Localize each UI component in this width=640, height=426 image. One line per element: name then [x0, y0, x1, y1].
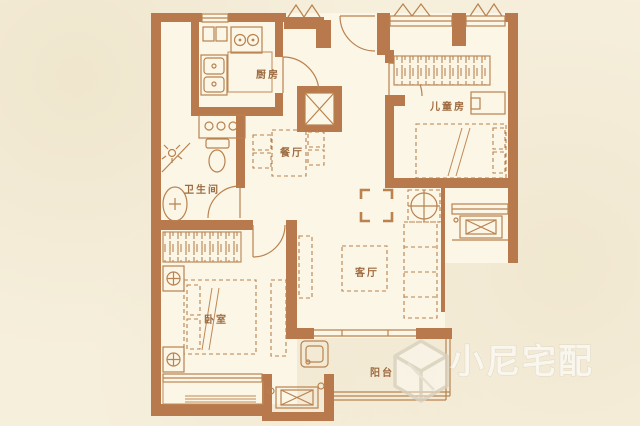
duct-shaft	[305, 93, 334, 125]
floor-plan-drawing: 厨房 儿童房 餐厅 卫生间 客厅 卧室 阳台 小尼宅配	[0, 0, 640, 426]
watermark-text: 小尼宅配	[450, 342, 594, 381]
room-label-children: 儿童房	[429, 100, 466, 113]
mop-basin	[301, 341, 328, 367]
room-label-kitchen: 厨房	[256, 68, 280, 81]
room-label-bedroom: 卧室	[204, 313, 228, 326]
bedroom-wardrobe	[163, 232, 241, 262]
watermark: 小尼宅配	[395, 341, 594, 401]
room-label-bathroom: 卫生间	[184, 183, 220, 196]
room-label-dining: 餐厅	[279, 146, 304, 159]
room-label-balcony: 阳台	[370, 366, 394, 379]
room-label-living: 客厅	[354, 266, 379, 279]
cube-logo-icon	[395, 341, 447, 401]
floor-plan-canvas: 厨房 儿童房 餐厅 卫生间 客厅 卧室 阳台 小尼宅配	[0, 0, 640, 426]
children-wardrobe	[394, 56, 490, 85]
